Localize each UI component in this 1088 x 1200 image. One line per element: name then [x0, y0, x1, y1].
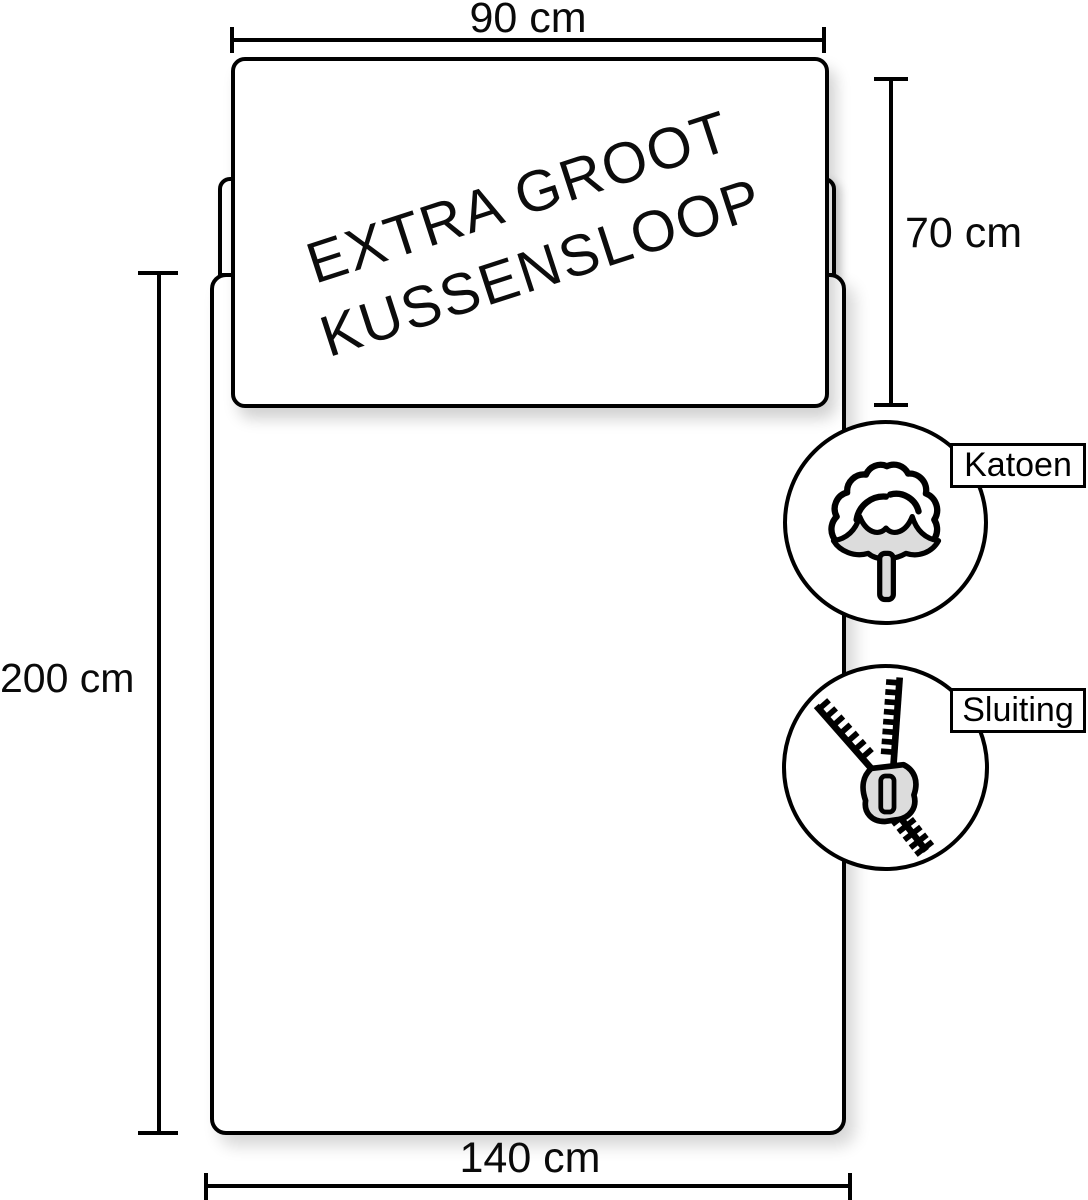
- dimension-line-bottom: [206, 1184, 850, 1188]
- pillow-outline: EXTRA GROOT KUSSENSLOOP: [231, 57, 829, 408]
- dimension-tick-left-top: [138, 271, 178, 275]
- dimension-tick-bottom-left: [204, 1173, 208, 1200]
- bedding-dimension-diagram: EXTRA GROOT KUSSENSLOOP 90 cm 70 cm 200 …: [0, 0, 1088, 1200]
- sluiting-label-box: Sluiting: [950, 688, 1086, 733]
- dimension-tick-top-right: [822, 27, 826, 53]
- katoen-label: Katoen: [964, 446, 1072, 485]
- dimension-label-duvet-width: 140 cm: [380, 1134, 680, 1183]
- dimension-label-pillow-width: 90 cm: [378, 0, 678, 43]
- sluiting-label: Sluiting: [962, 691, 1074, 730]
- dimension-tick-top-left: [230, 27, 234, 53]
- dimension-tick-right-top: [874, 77, 908, 81]
- cotton-flower-icon: [823, 446, 949, 604]
- katoen-label-box: Katoen: [950, 443, 1086, 488]
- dimension-tick-bottom-right: [848, 1173, 852, 1200]
- dimension-line-left: [157, 273, 161, 1135]
- dimension-tick-right-bottom: [874, 403, 908, 407]
- pillow-label: EXTRA GROOT KUSSENSLOOP: [288, 91, 772, 374]
- dimension-label-pillow-height: 70 cm: [905, 209, 1022, 258]
- dimension-tick-left-bottom: [138, 1131, 178, 1135]
- dimension-label-duvet-height: 200 cm: [0, 655, 134, 702]
- dimension-line-right: [889, 79, 893, 407]
